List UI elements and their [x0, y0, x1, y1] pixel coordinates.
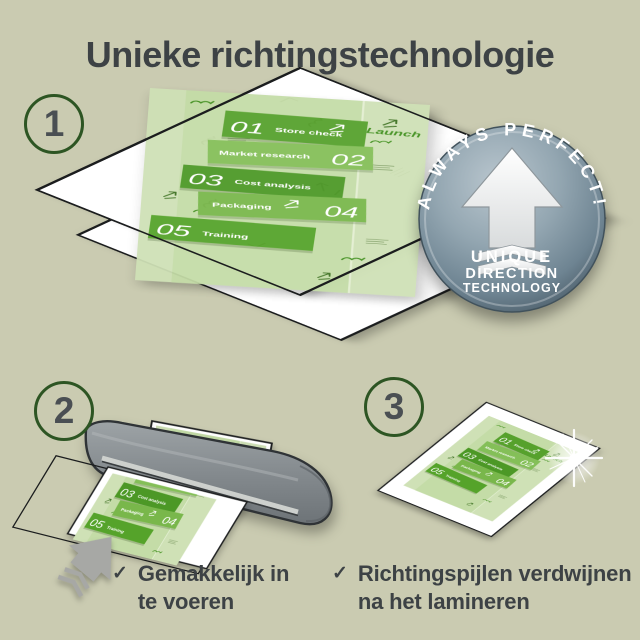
step-number-1: 1 — [24, 94, 84, 154]
badge-line-unique: UNIQUE — [471, 248, 553, 266]
checklist-text: Richtingspijlen verdwijnen na het lamine… — [358, 560, 632, 616]
illustration-art: Launch 01 Store check — [0, 0, 640, 640]
check-icon: ✓ — [332, 560, 348, 616]
checklist-text: Gemakkelijk in te voeren — [138, 560, 289, 616]
badge-line-technology: TECHNOLOGY — [463, 281, 561, 295]
check-icon: ✓ — [112, 560, 128, 616]
page-title: Unieke richtingstechnologie — [0, 34, 640, 76]
checklist-item-arrows-disappear: ✓ Richtingspijlen verdwijnen na het lami… — [332, 560, 631, 616]
checklist-item-easy-feed: ✓ Gemakkelijk in te voeren — [112, 560, 289, 616]
step-number-3: 3 — [364, 377, 424, 437]
green-card-step1 — [135, 88, 430, 297]
badge-line-direction: DIRECTION — [465, 266, 558, 282]
illustration-canvas: Launch 01 Store check — [0, 0, 640, 640]
step-number-2: 2 — [34, 381, 94, 441]
